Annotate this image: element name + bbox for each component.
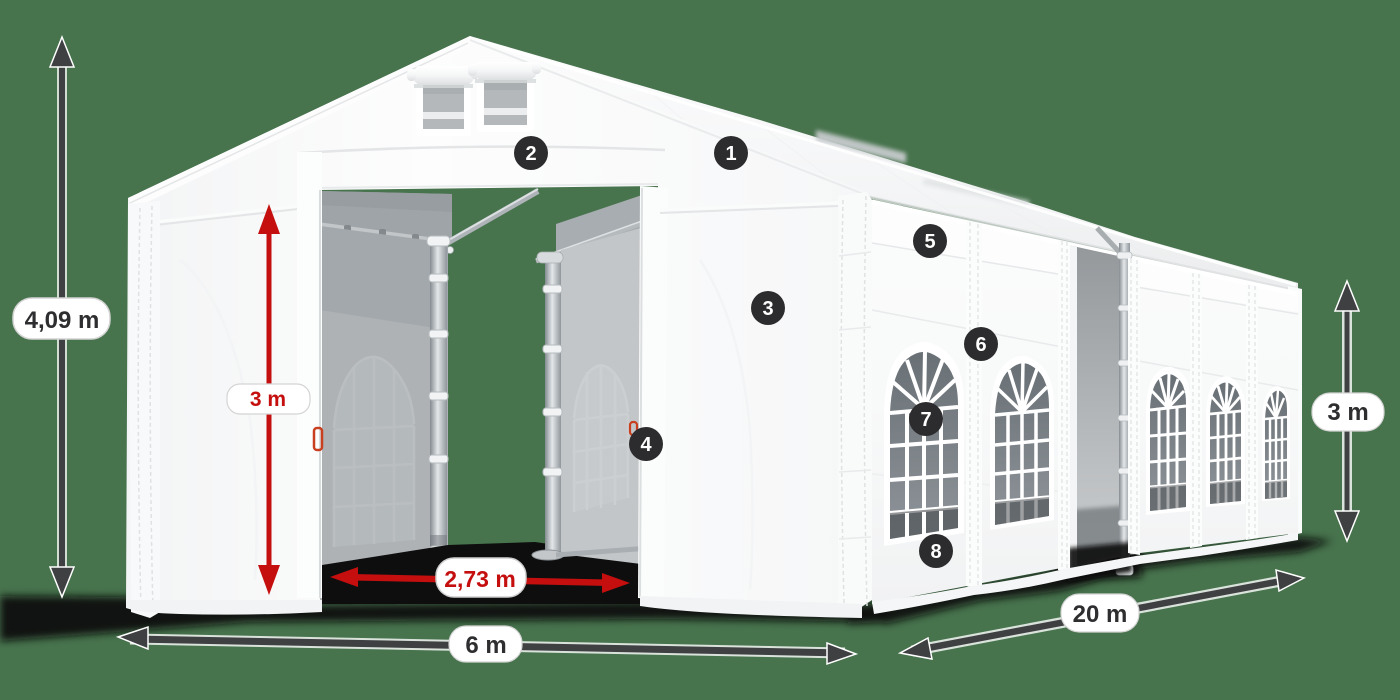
svg-text:2,73 m: 2,73 m: [444, 566, 516, 592]
svg-text:3 m: 3 m: [250, 388, 286, 411]
svg-text:3 m: 3 m: [1327, 399, 1368, 426]
svg-text:6 m: 6 m: [465, 632, 506, 659]
svg-text:20 m: 20 m: [1073, 601, 1128, 628]
svg-text:4,09 m: 4,09 m: [25, 307, 100, 334]
svg-text:1: 1: [725, 143, 736, 165]
svg-text:6: 6: [975, 334, 986, 356]
svg-text:5: 5: [924, 231, 935, 253]
svg-text:7: 7: [920, 409, 931, 431]
svg-text:2: 2: [525, 143, 536, 165]
svg-text:3: 3: [762, 298, 773, 320]
svg-text:8: 8: [930, 541, 941, 563]
svg-text:4: 4: [640, 434, 652, 456]
